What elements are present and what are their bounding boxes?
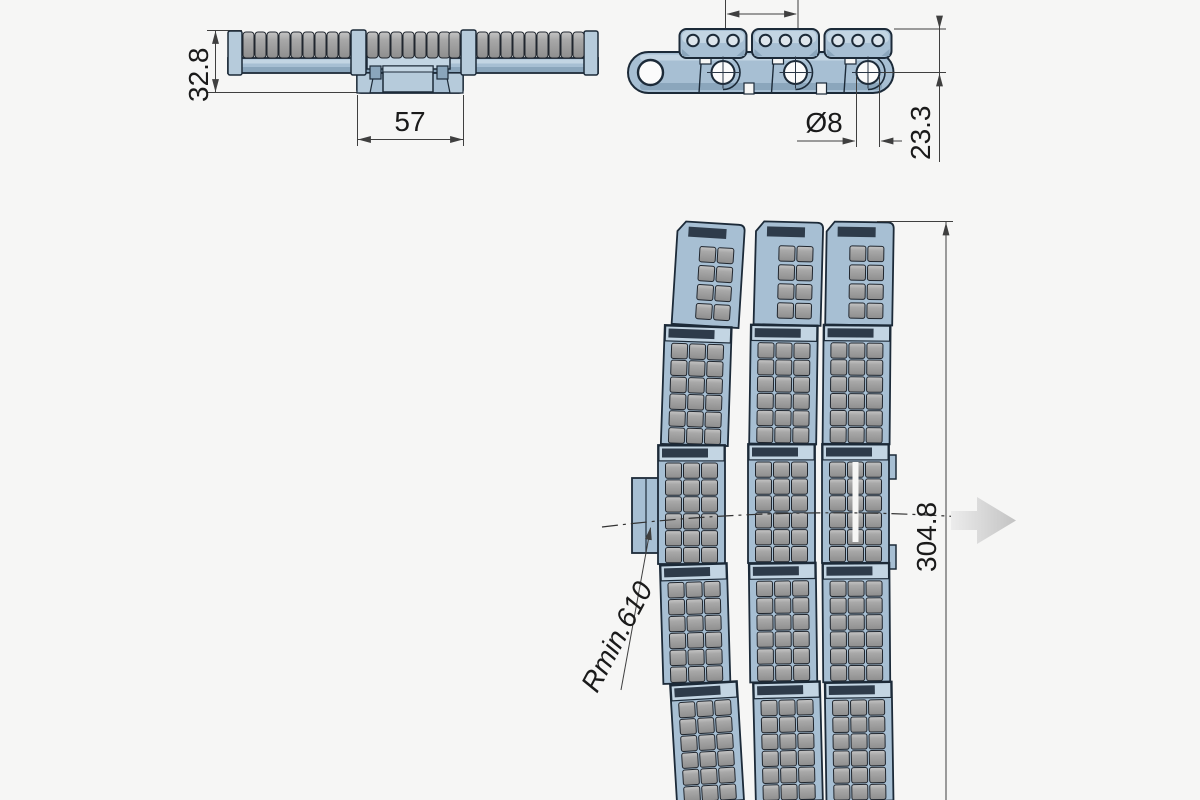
belt-module-row-2 xyxy=(748,221,823,800)
drawing-svg: 32.8 xyxy=(0,0,1200,800)
top-plate xyxy=(825,29,892,58)
dimension-label-plate-to-pin: 23.3 xyxy=(905,106,936,161)
top-plate xyxy=(680,29,747,58)
center-hub-block xyxy=(357,55,463,93)
top-rollers-row xyxy=(243,32,584,58)
dimension-label-hub-width: 57 xyxy=(394,106,425,137)
dimension-label-side-height: 32.8 xyxy=(183,48,214,103)
dimension-label-pin-diameter: Ø8 xyxy=(805,107,842,138)
hinge-slot-gap xyxy=(853,462,859,542)
link-eye-hole xyxy=(638,60,663,85)
technical-drawing-canvas: 32.8 xyxy=(0,0,1200,800)
top-plate xyxy=(752,29,819,58)
chain-top-plates xyxy=(680,29,892,58)
dimension-label-belt-width: 304.8 xyxy=(911,502,942,572)
